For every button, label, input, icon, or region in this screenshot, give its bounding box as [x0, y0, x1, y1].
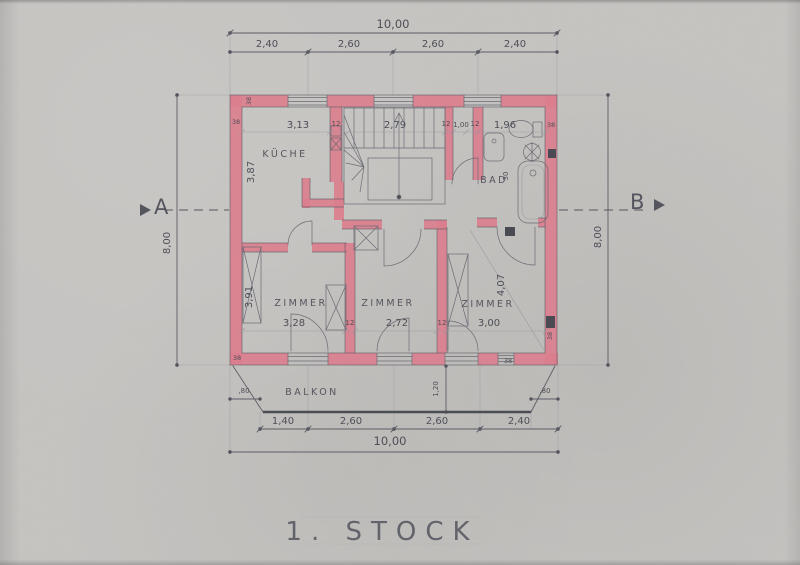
drawing-title: 1. STOCK — [285, 517, 478, 547]
dim-room-left-depth: 3,91 — [244, 286, 255, 308]
room-label-balcony: BALKON — [285, 387, 339, 398]
dim-top-seg-1: 2,40 — [256, 39, 278, 50]
room-label-kitchen: KÜCHE — [262, 149, 307, 160]
dim-int-top-1: 3,13 — [287, 120, 309, 131]
dim-kitchen-depth: 3,87 — [246, 161, 257, 183]
dim-int-bot-3: 2,72 — [386, 318, 408, 329]
dim-bottom-seg-2: 2,60 — [340, 416, 362, 427]
section-marker-b: B — [630, 190, 644, 214]
dim-top-total: 10,00 — [377, 17, 410, 31]
dim-wall-flue: 38 — [546, 332, 554, 340]
partition-room1-room2 — [345, 243, 355, 353]
dim-balcony-offset-left: ,80 — [238, 387, 249, 395]
dim-balcony-offset-right: ,80 — [539, 387, 550, 395]
wall-left — [230, 95, 242, 365]
dim-top-seg-2: 2,60 — [338, 39, 360, 50]
section-marker-a: A — [154, 195, 169, 219]
paper-texture — [0, 0, 800, 565]
partition-room2-room3 — [437, 220, 447, 353]
dim-int-top-7: 1,96 — [494, 120, 516, 131]
dim-wall-top: 38 — [245, 97, 253, 105]
dim-int-bot-5: 3,00 — [478, 318, 500, 329]
dim-top-seg-3: 2,60 — [422, 39, 444, 50]
floor-plan-drawing: 10,00 2,40 2,60 2,60 2,40 1,40 2,60 2,60… — [0, 0, 800, 565]
dim-balcony-depth: 1,20 — [432, 381, 440, 397]
scanned-floor-plan: 10,00 2,40 2,60 2,60 2,40 1,40 2,60 2,60… — [0, 0, 800, 565]
dim-bottom-seg-4: 2,40 — [508, 416, 530, 427]
room-label-bath: BAD — [480, 175, 508, 186]
dim-top-seg-4: 2,40 — [504, 39, 526, 50]
room-label-room-left: ZIMMER — [274, 298, 327, 309]
dim-height-left: 8,00 — [162, 232, 173, 254]
dim-int-top-6: 12 — [471, 120, 480, 128]
dim-int-top-4: 12 — [442, 120, 451, 128]
room-label-room-right: ZIMMER — [461, 299, 514, 310]
dim-height-right: 8,00 — [593, 226, 604, 248]
dim-int-top-8: 38 — [547, 121, 555, 129]
dim-bottom-seg-1: 1,40 — [272, 416, 294, 427]
dim-bottom-seg-3: 2,60 — [426, 416, 448, 427]
dim-wall-left: 38 — [232, 118, 240, 126]
dim-wall-bottom-right: 38 — [504, 357, 512, 365]
dim-wall-bottom-left: 38 — [233, 354, 241, 362]
dim-int-bot-4: 12 — [438, 319, 447, 327]
room-label-room-middle: ZIMMER — [361, 298, 414, 309]
dim-int-bot-2: 12 — [346, 319, 355, 327]
dim-int-top-3: 2,79 — [384, 120, 406, 131]
dim-int-top-2: 12 — [332, 120, 341, 128]
dim-bottom-total: 10,00 — [374, 434, 407, 448]
dim-room-right-depth: 4,07 — [496, 274, 507, 296]
dim-int-top-5: 1,00 — [453, 121, 469, 129]
partition-stair-right — [445, 107, 453, 180]
dim-int-bot-1: 3,28 — [283, 318, 305, 329]
